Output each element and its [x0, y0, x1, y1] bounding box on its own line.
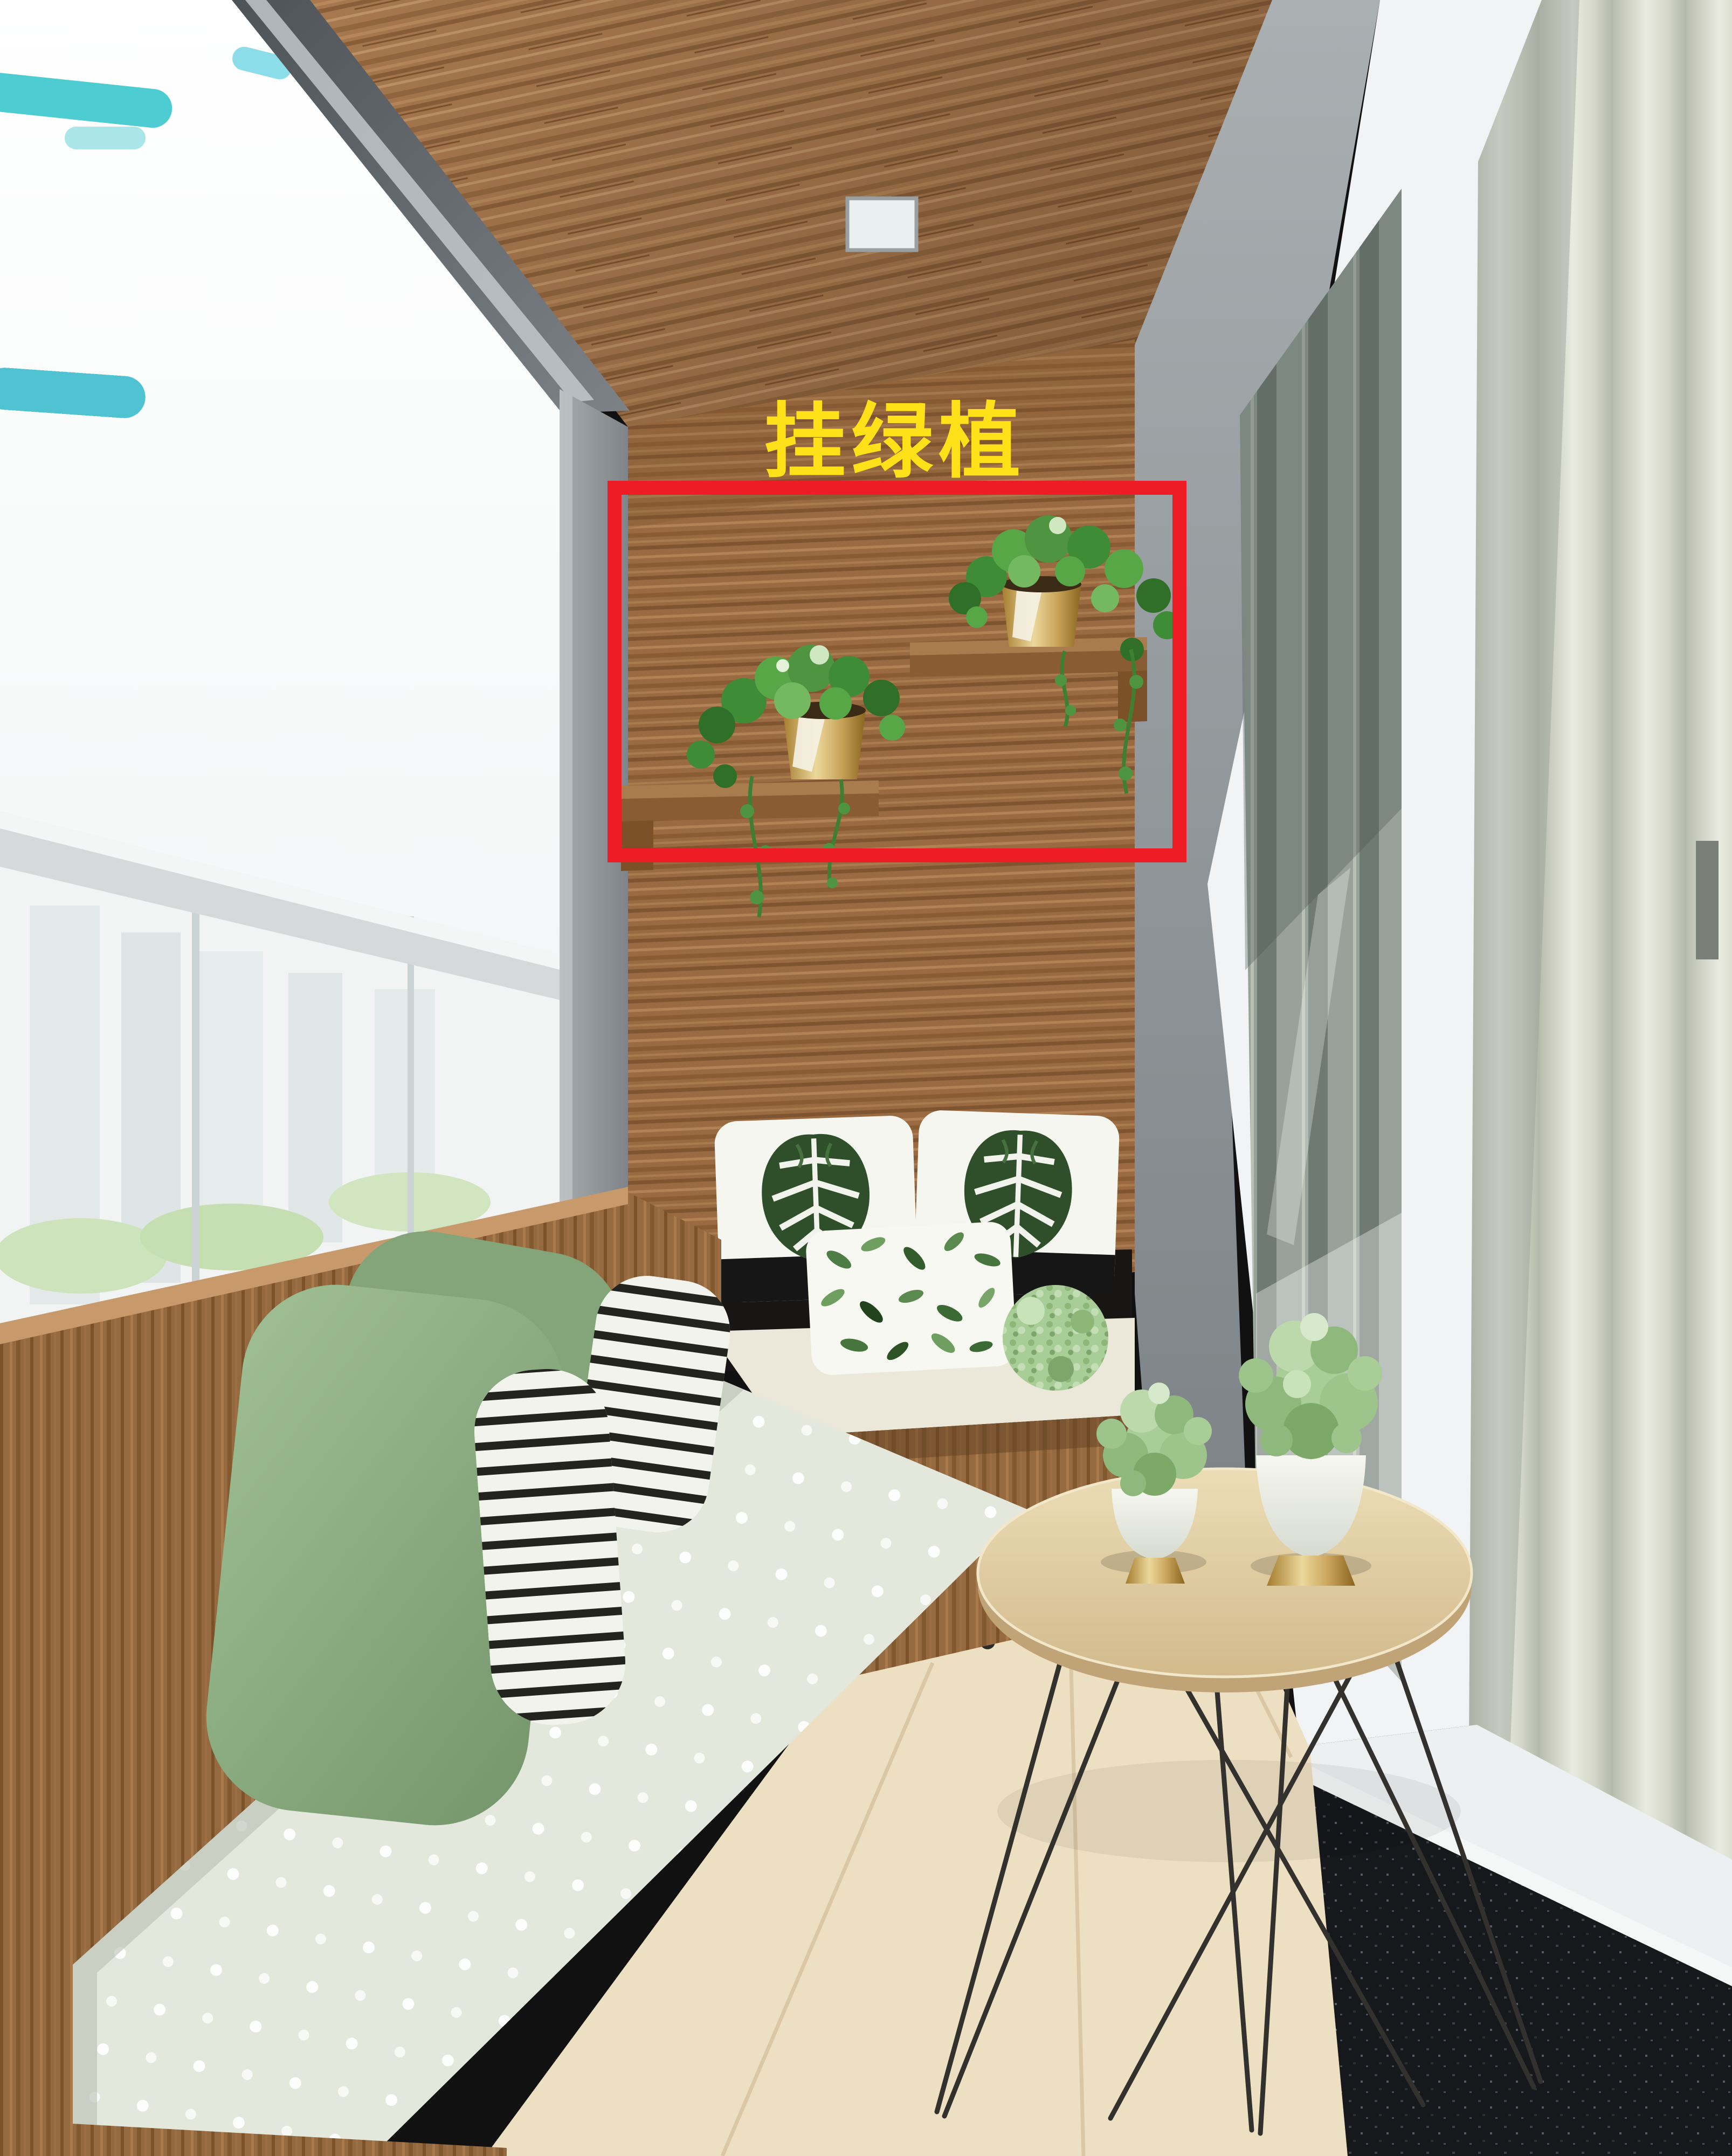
blind-gap: [1696, 841, 1719, 959]
tabletop[interactable]: [978, 1469, 1472, 1677]
striped-pillow-front: [470, 1365, 629, 1729]
pom-plant: [1003, 1285, 1108, 1391]
leaf-print-pillow: [805, 1221, 1017, 1376]
glass-mullion: [192, 884, 199, 1286]
vertical-blinds: [1469, 0, 1732, 1860]
recessed-ceiling-light: [847, 198, 916, 250]
scene-canvas: 挂绿植: [0, 0, 1732, 2156]
annotation-label: 挂绿植: [764, 393, 1026, 489]
gold-pot-base: [1126, 1558, 1185, 1584]
balcony-photo: 挂绿植: [0, 0, 1732, 2156]
gold-pot-base: [1267, 1556, 1355, 1586]
glass-mullion: [408, 916, 414, 1245]
